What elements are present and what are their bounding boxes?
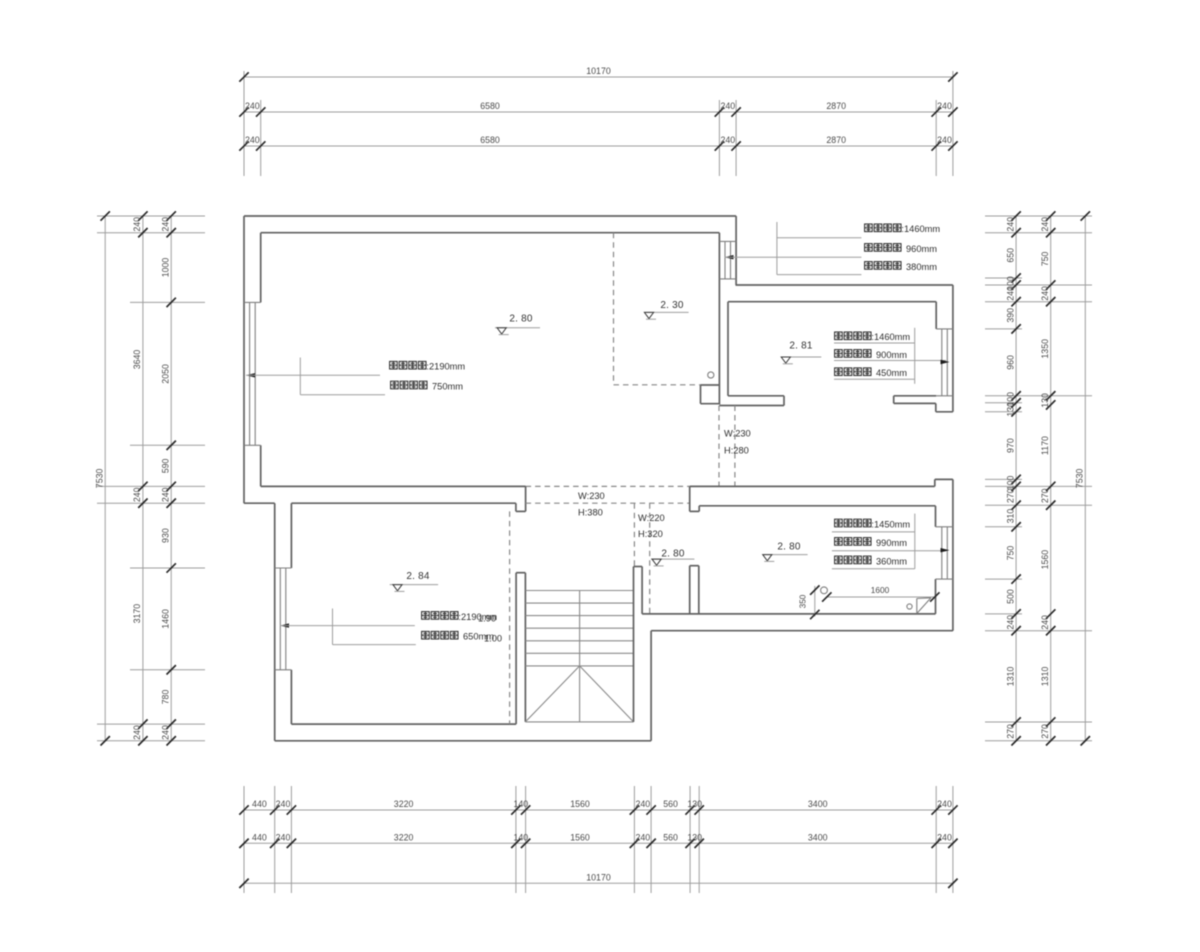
svg-text:240: 240 [245, 101, 260, 111]
svg-text:310: 310 [1005, 509, 1015, 524]
svg-text:H:320: H:320 [638, 529, 663, 539]
svg-text:2870: 2870 [826, 101, 846, 111]
svg-text:440: 440 [252, 833, 267, 843]
svg-text:6580: 6580 [480, 101, 500, 111]
svg-text:960: 960 [1005, 355, 1015, 370]
svg-text:240: 240 [937, 135, 952, 145]
svg-text:270: 270 [1005, 724, 1015, 739]
svg-text:2870: 2870 [826, 135, 846, 145]
svg-text:3170: 3170 [132, 604, 142, 624]
svg-text:2. 80: 2. 80 [509, 314, 532, 325]
svg-text:750: 750 [1005, 546, 1015, 561]
svg-text:1560: 1560 [570, 799, 590, 809]
svg-text:240: 240 [132, 487, 142, 502]
svg-text:1460: 1460 [161, 609, 171, 629]
svg-text:240: 240 [937, 799, 952, 809]
svg-text::1460mm: :1460mm [901, 224, 940, 234]
svg-text:240: 240 [937, 101, 952, 111]
svg-text:240: 240 [1040, 217, 1050, 232]
svg-text:10170: 10170 [586, 873, 611, 883]
svg-text:960mm: 960mm [903, 244, 937, 254]
svg-text:240: 240 [161, 725, 171, 740]
svg-text:1560: 1560 [1040, 550, 1050, 570]
svg-text:1600: 1600 [871, 585, 890, 595]
svg-text:240: 240 [245, 135, 260, 145]
svg-text:3400: 3400 [808, 799, 828, 809]
svg-text:240: 240 [1005, 615, 1015, 630]
svg-text:440: 440 [252, 799, 267, 809]
svg-text::1450mm: :1450mm [871, 519, 910, 529]
svg-text:3220: 3220 [394, 833, 414, 843]
svg-text:240: 240 [161, 217, 171, 232]
svg-text:130: 130 [687, 799, 702, 809]
svg-text:7530: 7530 [1075, 469, 1085, 489]
svg-text:240: 240 [276, 833, 291, 843]
svg-text:100: 100 [1005, 475, 1015, 490]
svg-text:1310: 1310 [1005, 667, 1015, 687]
svg-text:590: 590 [161, 458, 171, 473]
svg-text:1.90: 1.90 [478, 614, 496, 624]
svg-text:3220: 3220 [394, 799, 414, 809]
svg-text:500: 500 [1005, 589, 1015, 604]
svg-text:3400: 3400 [808, 833, 828, 843]
svg-text:360mm: 360mm [873, 556, 907, 566]
svg-text:H:280: H:280 [724, 446, 749, 456]
svg-text:W:230: W:230 [724, 429, 751, 439]
svg-text:240: 240 [132, 217, 142, 232]
svg-text:240: 240 [635, 799, 650, 809]
svg-text:2. 84: 2. 84 [406, 571, 429, 582]
svg-text::1460mm: :1460mm [871, 332, 910, 342]
svg-text:100: 100 [1005, 276, 1015, 291]
svg-text:2. 80: 2. 80 [777, 542, 800, 553]
svg-text:2050: 2050 [161, 364, 171, 384]
svg-text:1170: 1170 [1040, 436, 1050, 455]
svg-text:1.00: 1.00 [484, 634, 502, 644]
svg-text:2. 81: 2. 81 [789, 341, 812, 352]
svg-text:1000: 1000 [161, 258, 171, 278]
svg-text:240: 240 [635, 833, 650, 843]
svg-text:6580: 6580 [480, 135, 500, 145]
svg-text:2. 80: 2. 80 [661, 549, 684, 560]
svg-text:990mm: 990mm [873, 538, 907, 548]
svg-text:780: 780 [161, 690, 171, 705]
svg-text:650: 650 [1005, 248, 1015, 263]
svg-text:350: 350 [798, 594, 808, 608]
svg-text:380mm: 380mm [903, 262, 937, 272]
svg-text:390: 390 [1005, 308, 1015, 323]
svg-text:W:230: W:230 [578, 491, 605, 501]
svg-text:1350: 1350 [1040, 339, 1050, 359]
svg-text:450mm: 450mm [873, 368, 907, 378]
svg-text:240: 240 [1040, 615, 1050, 630]
svg-text:3640: 3640 [132, 350, 142, 370]
svg-text:560: 560 [663, 833, 678, 843]
svg-text:240: 240 [132, 725, 142, 740]
svg-text:140: 140 [513, 799, 528, 809]
svg-text:560: 560 [663, 799, 678, 809]
svg-text:7530: 7530 [95, 469, 105, 489]
svg-text:930: 930 [161, 528, 171, 543]
svg-text:240: 240 [1040, 286, 1050, 301]
svg-text:130: 130 [1005, 402, 1015, 417]
svg-text:1560: 1560 [570, 833, 590, 843]
svg-text:270: 270 [1040, 724, 1050, 739]
svg-text:750mm: 750mm [429, 381, 463, 391]
svg-text:140: 140 [513, 833, 528, 843]
svg-text:2. 30: 2. 30 [660, 300, 683, 311]
svg-text::2190mm: :2190mm [426, 362, 465, 372]
svg-text:H:380: H:380 [578, 508, 603, 518]
svg-text:10170: 10170 [586, 66, 611, 76]
svg-text:240: 240 [720, 101, 735, 111]
svg-text:130: 130 [687, 833, 702, 843]
svg-text:1310: 1310 [1040, 667, 1050, 687]
svg-text:240: 240 [937, 833, 952, 843]
svg-text:240: 240 [1005, 217, 1015, 232]
svg-text:750: 750 [1040, 251, 1050, 266]
svg-text:270: 270 [1040, 488, 1050, 503]
svg-text:240: 240 [720, 135, 735, 145]
svg-text:240: 240 [161, 487, 171, 502]
svg-text:130: 130 [1040, 393, 1050, 408]
svg-text:900mm: 900mm [873, 350, 907, 360]
svg-text:970: 970 [1005, 438, 1015, 453]
svg-text:W:220: W:220 [638, 513, 665, 523]
svg-text:240: 240 [276, 799, 291, 809]
